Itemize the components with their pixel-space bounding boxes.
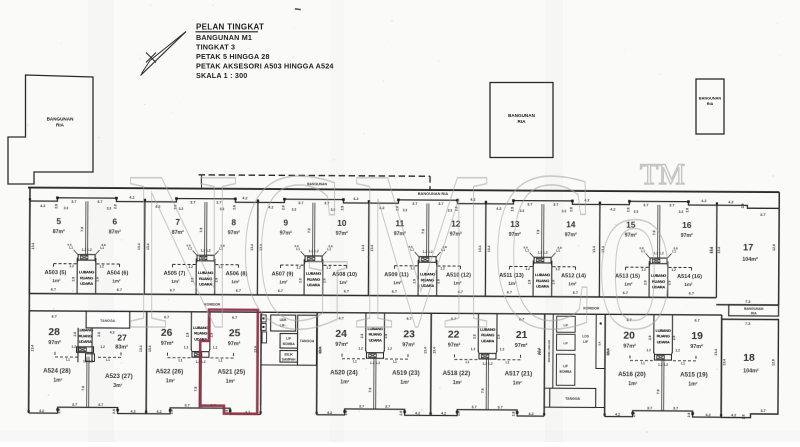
svg-text:7.8: 7.8 bbox=[194, 387, 198, 392]
svg-text:1.2: 1.2 bbox=[358, 347, 363, 351]
svg-text:6.6: 6.6 bbox=[187, 243, 192, 247]
svg-text:3.7: 3.7 bbox=[527, 203, 532, 207]
svg-text:97m²: 97m² bbox=[280, 230, 292, 236]
svg-text:1.2 1.2: 1.2 1.2 bbox=[201, 248, 211, 252]
svg-text:3.7: 3.7 bbox=[673, 406, 678, 410]
svg-text:13.4: 13.4 bbox=[31, 243, 35, 250]
svg-text:2.8: 2.8 bbox=[395, 206, 399, 211]
svg-text:6.7: 6.7 bbox=[695, 319, 700, 323]
svg-text:2.8: 2.8 bbox=[71, 277, 75, 282]
svg-text:13.4: 13.4 bbox=[601, 246, 605, 253]
svg-text:7.8: 7.8 bbox=[199, 228, 203, 233]
svg-text:97m²: 97m² bbox=[625, 232, 637, 238]
svg-text:13.4: 13.4 bbox=[710, 247, 714, 254]
svg-text:1m²: 1m² bbox=[513, 380, 522, 386]
svg-text:1.2: 1.2 bbox=[675, 348, 680, 352]
svg-text:2.8: 2.8 bbox=[214, 278, 218, 283]
svg-text:RIA: RIA bbox=[707, 102, 714, 106]
svg-text:L1: L1 bbox=[681, 361, 685, 365]
svg-text:13.4: 13.4 bbox=[259, 244, 263, 251]
svg-text:12.8: 12.8 bbox=[772, 244, 776, 251]
svg-text:L1: L1 bbox=[506, 360, 510, 364]
svg-text:1.2: 1.2 bbox=[218, 265, 223, 269]
svg-text:1.2: 1.2 bbox=[188, 265, 193, 269]
svg-text:19: 19 bbox=[691, 331, 703, 342]
svg-text:2.8: 2.8 bbox=[173, 205, 177, 210]
svg-text:17: 17 bbox=[743, 242, 753, 252]
svg-text:LUBANG: LUBANG bbox=[368, 326, 383, 331]
svg-text:6.7: 6.7 bbox=[170, 288, 175, 292]
svg-text:13.4: 13.4 bbox=[538, 349, 542, 356]
svg-text:2.8: 2.8 bbox=[57, 409, 61, 414]
svg-text:1.2 1.2: 1.2 1.2 bbox=[370, 361, 380, 365]
svg-text:A510 (12): A510 (12) bbox=[446, 273, 471, 279]
svg-text:2.8: 2.8 bbox=[632, 412, 636, 417]
svg-text:7.3: 7.3 bbox=[745, 300, 750, 304]
svg-text:2.8: 2.8 bbox=[412, 279, 416, 284]
svg-text:BANGUNAN: BANGUNAN bbox=[47, 117, 74, 122]
svg-text:2.8: 2.8 bbox=[741, 203, 745, 208]
svg-text:8.8: 8.8 bbox=[221, 243, 226, 247]
svg-text:1.2 1.2: 1.2 1.2 bbox=[654, 251, 664, 255]
svg-text:15: 15 bbox=[626, 219, 636, 229]
svg-text:4.2: 4.2 bbox=[441, 411, 446, 415]
svg-text:L1: L1 bbox=[466, 360, 470, 364]
svg-text:3.7: 3.7 bbox=[71, 200, 76, 204]
svg-text:3.3: 3.3 bbox=[220, 207, 225, 211]
svg-text:RUANG: RUANG bbox=[307, 276, 320, 281]
svg-text:104m²: 104m² bbox=[743, 368, 759, 374]
svg-text:6.7: 6.7 bbox=[392, 290, 397, 294]
svg-text:6.6: 6.6 bbox=[524, 245, 529, 249]
svg-text:4.2: 4.2 bbox=[242, 196, 247, 200]
svg-text:4.2: 4.2 bbox=[129, 196, 134, 200]
svg-text:6.7: 6.7 bbox=[627, 318, 632, 322]
svg-text:2.8: 2.8 bbox=[569, 207, 573, 212]
svg-text:7.8: 7.8 bbox=[368, 388, 372, 393]
svg-text:9: 9 bbox=[283, 217, 288, 227]
svg-text:A516 (20): A516 (20) bbox=[618, 371, 646, 378]
svg-text:13.4: 13.4 bbox=[487, 245, 491, 252]
svg-text:LUBANG: LUBANG bbox=[656, 328, 671, 333]
svg-text:2.8: 2.8 bbox=[298, 278, 302, 283]
svg-text:3.7: 3.7 bbox=[498, 405, 503, 409]
svg-text:L1: L1 bbox=[353, 359, 357, 363]
svg-text:BANGUNAN: BANGUNAN bbox=[307, 182, 327, 186]
svg-text:97m²: 97m² bbox=[394, 231, 406, 237]
svg-text:104m²: 104m² bbox=[742, 257, 758, 263]
svg-text:1.2: 1.2 bbox=[641, 268, 646, 272]
svg-text:A509 (11): A509 (11) bbox=[384, 272, 409, 278]
svg-text:13.4: 13.4 bbox=[318, 347, 322, 354]
svg-text:A507 (9): A507 (9) bbox=[272, 271, 294, 277]
svg-text:UDARA: UDARA bbox=[421, 283, 434, 288]
svg-text:BILIK: BILIK bbox=[285, 352, 294, 356]
svg-text:4.2: 4.2 bbox=[701, 199, 706, 203]
svg-text:3.7: 3.7 bbox=[472, 405, 477, 409]
svg-text:LIF: LIF bbox=[563, 364, 568, 368]
svg-text:8: 8 bbox=[231, 217, 236, 227]
svg-text:1.2: 1.2 bbox=[213, 346, 218, 350]
svg-text:13.4: 13.4 bbox=[423, 347, 427, 354]
svg-text:6.7: 6.7 bbox=[623, 291, 628, 295]
svg-text:1.2: 1.2 bbox=[296, 265, 301, 269]
svg-text:4.2: 4.2 bbox=[415, 411, 420, 415]
svg-text:LIF: LIF bbox=[583, 340, 588, 344]
svg-text:A506 (8): A506 (8) bbox=[226, 271, 248, 277]
svg-text:22: 22 bbox=[448, 329, 460, 340]
svg-text:3.7: 3.7 bbox=[216, 201, 221, 205]
svg-text:4.2: 4.2 bbox=[40, 204, 45, 208]
svg-text:1.2: 1.2 bbox=[500, 347, 505, 351]
svg-text:3.7: 3.7 bbox=[72, 403, 77, 407]
svg-text:7.8: 7.8 bbox=[81, 386, 85, 391]
svg-text:6.7: 6.7 bbox=[507, 290, 512, 294]
svg-text:UDARA: UDARA bbox=[369, 337, 382, 342]
svg-text:13.4: 13.4 bbox=[370, 245, 374, 252]
svg-text:2.8: 2.8 bbox=[170, 409, 174, 414]
svg-text:2.8: 2.8 bbox=[190, 278, 194, 283]
svg-text:6.7: 6.7 bbox=[689, 291, 694, 295]
svg-text:97m²: 97m² bbox=[48, 340, 61, 346]
svg-text:3.3: 3.3 bbox=[634, 210, 639, 214]
svg-text:4.2: 4.2 bbox=[728, 200, 733, 204]
svg-text:3.7: 3.7 bbox=[185, 403, 190, 407]
svg-text:25: 25 bbox=[229, 328, 241, 339]
svg-text:13.4: 13.4 bbox=[722, 359, 726, 366]
svg-text:3.7: 3.7 bbox=[643, 203, 648, 207]
svg-text:1m²: 1m² bbox=[508, 281, 517, 286]
svg-text:4.2: 4.2 bbox=[610, 207, 615, 211]
svg-text:A513 (15): A513 (15) bbox=[615, 274, 640, 280]
svg-text:A519 (23): A519 (23) bbox=[392, 370, 420, 377]
svg-text:A503 (5): A503 (5) bbox=[45, 270, 67, 276]
svg-text:1m²: 1m² bbox=[453, 380, 462, 386]
svg-text:A517 (21): A517 (21) bbox=[505, 370, 533, 377]
svg-text:BANGUNAN M1: BANGUNAN M1 bbox=[196, 33, 252, 42]
svg-text:6.7: 6.7 bbox=[232, 316, 237, 320]
svg-text:2.8: 2.8 bbox=[473, 334, 477, 339]
svg-text:KORIDOR: KORIDOR bbox=[204, 303, 221, 307]
svg-text:2.8: 2.8 bbox=[626, 207, 630, 212]
svg-text:2.8: 2.8 bbox=[186, 333, 190, 338]
svg-text:L1: L1 bbox=[66, 358, 70, 362]
svg-text:BOMBA: BOMBA bbox=[283, 342, 296, 346]
svg-text:13.4: 13.4 bbox=[606, 349, 610, 356]
svg-text:7.8: 7.8 bbox=[421, 229, 425, 234]
svg-text:4.2: 4.2 bbox=[706, 413, 711, 417]
svg-text:1m²: 1m² bbox=[453, 280, 462, 285]
svg-text:18: 18 bbox=[743, 353, 755, 364]
svg-text:A524 (28): A524 (28) bbox=[43, 368, 71, 375]
svg-text:LUBANG: LUBANG bbox=[651, 273, 666, 278]
svg-text:2.8: 2.8 bbox=[643, 280, 647, 285]
svg-text:1.2: 1.2 bbox=[440, 266, 445, 270]
svg-text:2.8: 2.8 bbox=[512, 411, 516, 416]
svg-text:3.3: 3.3 bbox=[679, 210, 684, 214]
svg-text:6.7: 6.7 bbox=[451, 317, 456, 321]
svg-text:1m²: 1m² bbox=[684, 282, 693, 287]
svg-text:RUANG: RUANG bbox=[481, 332, 494, 337]
svg-text:1m²: 1m² bbox=[568, 281, 577, 286]
svg-text:1m²: 1m² bbox=[279, 279, 288, 284]
svg-text:BANGUNAN RIA: BANGUNAN RIA bbox=[418, 191, 449, 196]
svg-text:13.4: 13.4 bbox=[478, 245, 482, 252]
svg-text:6.7: 6.7 bbox=[52, 315, 57, 319]
svg-text:2.8: 2.8 bbox=[687, 413, 691, 418]
svg-text:1m²: 1m² bbox=[688, 382, 697, 388]
svg-text:28: 28 bbox=[48, 327, 60, 338]
svg-text:7.3: 7.3 bbox=[745, 322, 750, 326]
svg-text:2.8: 2.8 bbox=[73, 332, 77, 337]
svg-text:13.4: 13.4 bbox=[146, 243, 150, 250]
svg-text:6.7: 6.7 bbox=[51, 287, 56, 291]
svg-text:6.7: 6.7 bbox=[236, 289, 241, 293]
svg-text:11: 11 bbox=[395, 218, 404, 228]
svg-text:6.7: 6.7 bbox=[407, 317, 412, 321]
svg-text:KORIDOR: KORIDOR bbox=[583, 306, 600, 310]
svg-text:1m²: 1m² bbox=[231, 279, 240, 284]
svg-text:1m²: 1m² bbox=[624, 281, 633, 286]
svg-text:4.2: 4.2 bbox=[268, 205, 273, 209]
svg-text:LIF -: LIF - bbox=[280, 324, 287, 328]
svg-text:6.6: 6.6 bbox=[295, 244, 300, 248]
svg-text:97m²: 97m² bbox=[402, 342, 415, 348]
svg-text:LUBANG: LUBANG bbox=[193, 325, 208, 330]
svg-text:13.4: 13.4 bbox=[361, 245, 365, 252]
svg-text:2.8: 2.8 bbox=[344, 410, 348, 415]
svg-text:L1: L1 bbox=[179, 358, 183, 362]
svg-text:97m²: 97m² bbox=[228, 230, 240, 236]
svg-text:RUANG: RUANG bbox=[652, 279, 665, 284]
svg-text:97m²: 97m² bbox=[509, 232, 521, 238]
svg-text:3.7: 3.7 bbox=[669, 204, 674, 208]
svg-text:2.8: 2.8 bbox=[281, 205, 285, 210]
svg-text:1m²: 1m² bbox=[166, 378, 175, 384]
svg-text:RIA: RIA bbox=[751, 311, 757, 315]
svg-text:8.8: 8.8 bbox=[443, 245, 448, 249]
svg-text:3.7: 3.7 bbox=[760, 213, 765, 217]
svg-text:6.7: 6.7 bbox=[458, 290, 463, 294]
svg-text:3.7: 3.7 bbox=[359, 404, 364, 408]
svg-text:97m²: 97m² bbox=[161, 341, 174, 347]
svg-text:7.8: 7.8 bbox=[652, 230, 656, 235]
svg-text:1m²: 1m² bbox=[628, 381, 637, 387]
svg-text:A522 (26): A522 (26) bbox=[156, 368, 184, 375]
svg-text:1.2: 1.2 bbox=[69, 264, 74, 268]
svg-text:1.2: 1.2 bbox=[184, 345, 189, 349]
svg-text:1.2: 1.2 bbox=[671, 268, 676, 272]
svg-text:3.7: 3.7 bbox=[412, 202, 417, 206]
svg-text:5: 5 bbox=[56, 216, 61, 226]
svg-text:4.2: 4.2 bbox=[39, 409, 44, 413]
svg-text:2.8: 2.8 bbox=[436, 279, 440, 284]
svg-text:1.2: 1.2 bbox=[387, 347, 392, 351]
svg-text:7.8: 7.8 bbox=[656, 389, 660, 394]
svg-text:1.2: 1.2 bbox=[525, 267, 530, 271]
svg-text:3.7: 3.7 bbox=[385, 404, 390, 408]
svg-text:97m²: 97m² bbox=[690, 344, 703, 350]
svg-text:97m²: 97m² bbox=[448, 343, 461, 349]
svg-text:L1: L1 bbox=[641, 361, 645, 365]
svg-text:1m²: 1m² bbox=[53, 378, 62, 384]
svg-text:3.7: 3.7 bbox=[438, 202, 443, 206]
svg-text:RUANG: RUANG bbox=[199, 276, 212, 281]
svg-text:A521 (25): A521 (25) bbox=[218, 369, 246, 376]
svg-text:3.7: 3.7 bbox=[761, 409, 766, 413]
svg-text:3.3: 3.3 bbox=[520, 209, 525, 213]
svg-text:RUANG: RUANG bbox=[421, 277, 434, 282]
svg-text:87m²: 87m² bbox=[172, 230, 184, 236]
svg-text:BANGUNAN: BANGUNAN bbox=[699, 97, 721, 101]
svg-text:2.8: 2.8 bbox=[497, 334, 501, 339]
svg-text:3.3: 3.3 bbox=[448, 209, 453, 213]
svg-text:4.2: 4.2 bbox=[529, 412, 534, 416]
svg-text:97m²: 97m² bbox=[681, 233, 693, 239]
svg-text:6.7: 6.7 bbox=[573, 291, 578, 295]
svg-text:13.4: 13.4 bbox=[432, 347, 436, 354]
svg-text:97m²: 97m² bbox=[565, 232, 577, 238]
svg-text:4.2: 4.2 bbox=[496, 207, 501, 211]
svg-text:RUANG: RUANG bbox=[657, 333, 670, 338]
svg-text:13.4: 13.4 bbox=[250, 244, 254, 251]
svg-text:13.4: 13.4 bbox=[717, 247, 721, 254]
svg-text:SAMPAH: SAMPAH bbox=[282, 357, 296, 361]
svg-text:1m²: 1m² bbox=[171, 279, 180, 284]
svg-text:RUANG: RUANG bbox=[194, 331, 207, 336]
svg-text:A514 (16): A514 (16) bbox=[677, 274, 702, 280]
svg-text:7.8: 7.8 bbox=[307, 228, 311, 233]
svg-text:A511 (13): A511 (13) bbox=[499, 273, 524, 279]
svg-text:23: 23 bbox=[403, 329, 415, 340]
svg-text:4.2: 4.2 bbox=[470, 198, 475, 202]
svg-text:2.8: 2.8 bbox=[322, 278, 326, 283]
svg-text:6.7: 6.7 bbox=[519, 317, 524, 321]
svg-text:TINGKAT 3: TINGKAT 3 bbox=[196, 43, 235, 52]
svg-text:3.3: 3.3 bbox=[292, 208, 297, 212]
svg-text:1.2: 1.2 bbox=[646, 348, 651, 352]
svg-text:1m²: 1m² bbox=[52, 278, 61, 283]
svg-text:LIF: LIF bbox=[564, 323, 569, 327]
svg-text:A518 (22): A518 (22) bbox=[443, 370, 471, 377]
svg-text:1m²: 1m² bbox=[393, 280, 402, 285]
svg-text:4.2: 4.2 bbox=[131, 409, 136, 413]
svg-text:TANGGA: TANGGA bbox=[300, 339, 315, 343]
svg-text:83m²: 83m² bbox=[115, 345, 128, 351]
svg-text:2.8: 2.8 bbox=[742, 414, 746, 419]
svg-text:1.2: 1.2 bbox=[71, 345, 76, 349]
svg-text:SKALA 1 : 300: SKALA 1 : 300 bbox=[196, 71, 247, 80]
svg-text:2.8: 2.8 bbox=[384, 334, 388, 339]
svg-text:RIA: RIA bbox=[56, 123, 65, 128]
svg-text:21: 21 bbox=[516, 330, 528, 341]
svg-text:1m²: 1m² bbox=[400, 380, 409, 386]
svg-text:13.4: 13.4 bbox=[139, 345, 143, 352]
svg-text:2.8: 2.8 bbox=[685, 208, 689, 213]
svg-text:20: 20 bbox=[623, 330, 635, 341]
svg-text:1.2: 1.2 bbox=[410, 266, 415, 270]
svg-text:4.2: 4.2 bbox=[731, 413, 736, 417]
svg-text:LOS: LOS bbox=[582, 334, 589, 338]
svg-text:13.4: 13.4 bbox=[31, 345, 35, 352]
svg-text:RUANG: RUANG bbox=[369, 332, 382, 337]
svg-text:3.3: 3.3 bbox=[179, 207, 184, 211]
svg-text:4.2: 4.2 bbox=[379, 206, 384, 210]
svg-text:6.6: 6.6 bbox=[68, 243, 73, 247]
svg-text:97m²: 97m² bbox=[228, 341, 241, 347]
svg-text:2.8: 2.8 bbox=[510, 207, 514, 212]
svg-text:3m²: 3m² bbox=[113, 383, 122, 389]
svg-text:6.6: 6.6 bbox=[409, 245, 414, 249]
svg-text:2.8: 2.8 bbox=[648, 335, 652, 340]
svg-text:6.7: 6.7 bbox=[164, 315, 169, 319]
svg-text:3.7: 3.7 bbox=[190, 201, 195, 205]
svg-text:PETAK 5 HINGGA 28: PETAK 5 HINGGA 28 bbox=[196, 52, 270, 61]
svg-text:4.2: 4.2 bbox=[353, 197, 358, 201]
svg-text:LIF: LIF bbox=[563, 341, 568, 345]
svg-text:87m²: 87m² bbox=[53, 229, 65, 235]
svg-text:L1: L1 bbox=[219, 359, 223, 363]
svg-text:PETAK AKSESORI A503 HINGGA: PETAK AKSESORI A503 HINGGA A524 bbox=[196, 62, 334, 71]
svg-text:13.4: 13.4 bbox=[714, 349, 718, 356]
svg-text:LUBANG: LUBANG bbox=[306, 271, 321, 276]
svg-text:1.2 1.2: 1.2 1.2 bbox=[658, 363, 668, 367]
svg-text:L1: L1 bbox=[393, 360, 397, 364]
svg-text:13: 13 bbox=[510, 219, 520, 229]
svg-text:LUBANG: LUBANG bbox=[420, 271, 435, 276]
svg-text:1.2 1.2: 1.2 1.2 bbox=[309, 249, 319, 253]
svg-text:16: 16 bbox=[682, 220, 692, 230]
svg-text:RIA: RIA bbox=[518, 119, 527, 124]
svg-text:4.2: 4.2 bbox=[157, 410, 162, 414]
svg-text:2.8: 2.8 bbox=[360, 334, 364, 339]
svg-text:LUBANG: LUBANG bbox=[480, 327, 495, 332]
svg-text:LUBANG: LUBANG bbox=[198, 270, 213, 275]
svg-text:26: 26 bbox=[161, 328, 173, 339]
svg-text:3.3: 3.3 bbox=[403, 208, 408, 212]
svg-text:BANGUNAN: BANGUNAN bbox=[508, 113, 535, 118]
svg-text:4.2: 4.2 bbox=[615, 412, 620, 416]
svg-text:12: 12 bbox=[451, 218, 461, 228]
svg-text:97m²: 97m² bbox=[515, 343, 528, 349]
svg-text:3.7: 3.7 bbox=[647, 406, 652, 410]
svg-text:2.8: 2.8 bbox=[454, 206, 458, 211]
svg-text:UDARA: UDARA bbox=[307, 282, 320, 287]
svg-text:2.8: 2.8 bbox=[399, 411, 403, 416]
svg-text:7: 7 bbox=[175, 217, 180, 227]
svg-text:6.7: 6.7 bbox=[344, 289, 349, 293]
svg-text:2.8: 2.8 bbox=[232, 205, 236, 210]
svg-text:1m²: 1m² bbox=[226, 379, 235, 385]
svg-text:27: 27 bbox=[117, 333, 127, 343]
svg-text:6.7: 6.7 bbox=[117, 288, 122, 292]
svg-text:8.8: 8.8 bbox=[674, 246, 679, 250]
svg-text:A515 (19): A515 (19) bbox=[680, 371, 708, 378]
svg-text:2.8: 2.8 bbox=[54, 204, 58, 209]
svg-text:1.2 1.2: 1.2 1.2 bbox=[482, 362, 492, 366]
svg-text:7.8: 7.8 bbox=[80, 227, 84, 232]
svg-text:3.7: 3.7 bbox=[324, 201, 329, 205]
svg-text:2.8: 2.8 bbox=[457, 411, 461, 416]
svg-text:4.2: 4.2 bbox=[584, 199, 589, 203]
svg-text:7.8: 7.8 bbox=[536, 230, 540, 235]
svg-text:3.7: 3.7 bbox=[298, 201, 303, 205]
svg-text:1.2: 1.2 bbox=[471, 347, 476, 351]
svg-text:UDARA: UDARA bbox=[657, 339, 670, 344]
svg-text:7.8: 7.8 bbox=[481, 388, 485, 393]
svg-text:12.8: 12.8 bbox=[772, 359, 776, 366]
svg-text:2.8: 2.8 bbox=[672, 335, 676, 340]
